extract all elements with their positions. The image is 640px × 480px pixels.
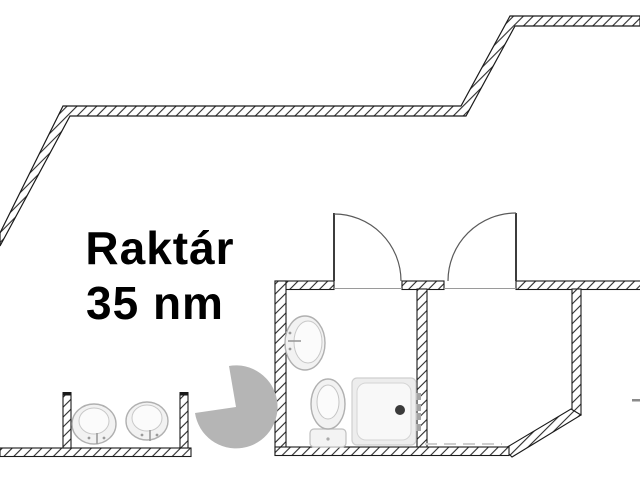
sink-left-bowl	[79, 408, 109, 434]
sink-right-tap-dot	[141, 434, 144, 437]
top-wall-right-segment	[516, 281, 640, 290]
outline-wall	[0, 16, 640, 246]
sink-left-tap-dot	[88, 437, 91, 440]
bottom-wall	[275, 447, 509, 456]
floor-plan: Raktár 35 nm	[0, 0, 640, 480]
sink-left-icon	[72, 404, 116, 444]
washroom-bottom-wall	[0, 448, 191, 457]
shower-drain	[395, 405, 405, 415]
floor-plan-canvas: Raktár 35 nm	[0, 0, 640, 480]
washbasin-bowl	[294, 321, 322, 363]
washbasin-icon	[285, 316, 325, 370]
room-area-label: 35 nm	[86, 277, 224, 329]
door-left-icon	[334, 213, 401, 281]
sink-right-tap-dot	[156, 434, 159, 437]
sink-right-icon	[126, 402, 168, 441]
outline-wall-band	[0, 16, 640, 246]
toilet-bowl-inner	[317, 385, 339, 419]
chamfer-wall	[504, 409, 581, 457]
sink-right-bowl	[132, 405, 162, 431]
washroom-stub-cap-left	[63, 392, 72, 396]
watermark-dash-fragment	[632, 399, 640, 402]
toilet-icon	[310, 379, 346, 447]
room-name-label: Raktár	[85, 222, 234, 274]
washbasin-tap-dot	[289, 348, 292, 351]
top-wall-mid-segment	[402, 281, 444, 290]
washbasin-tap-dot	[289, 332, 292, 335]
door-left-swing-arc	[334, 214, 401, 281]
right-room-right-wall	[572, 289, 581, 415]
washroom-stub-wall-right	[180, 394, 188, 448]
shower-icon	[352, 378, 416, 445]
door-right-icon	[448, 213, 516, 281]
sink-left-tap-dot	[103, 437, 106, 440]
toilet-flush-dot	[326, 437, 329, 440]
washroom-stub-cap-right	[180, 392, 189, 396]
bathroom-left-wall	[275, 281, 286, 455]
watermark-pie-icon	[195, 365, 278, 448]
washroom-stub-wall-left	[63, 394, 71, 448]
door-right-swing-arc	[448, 213, 516, 281]
